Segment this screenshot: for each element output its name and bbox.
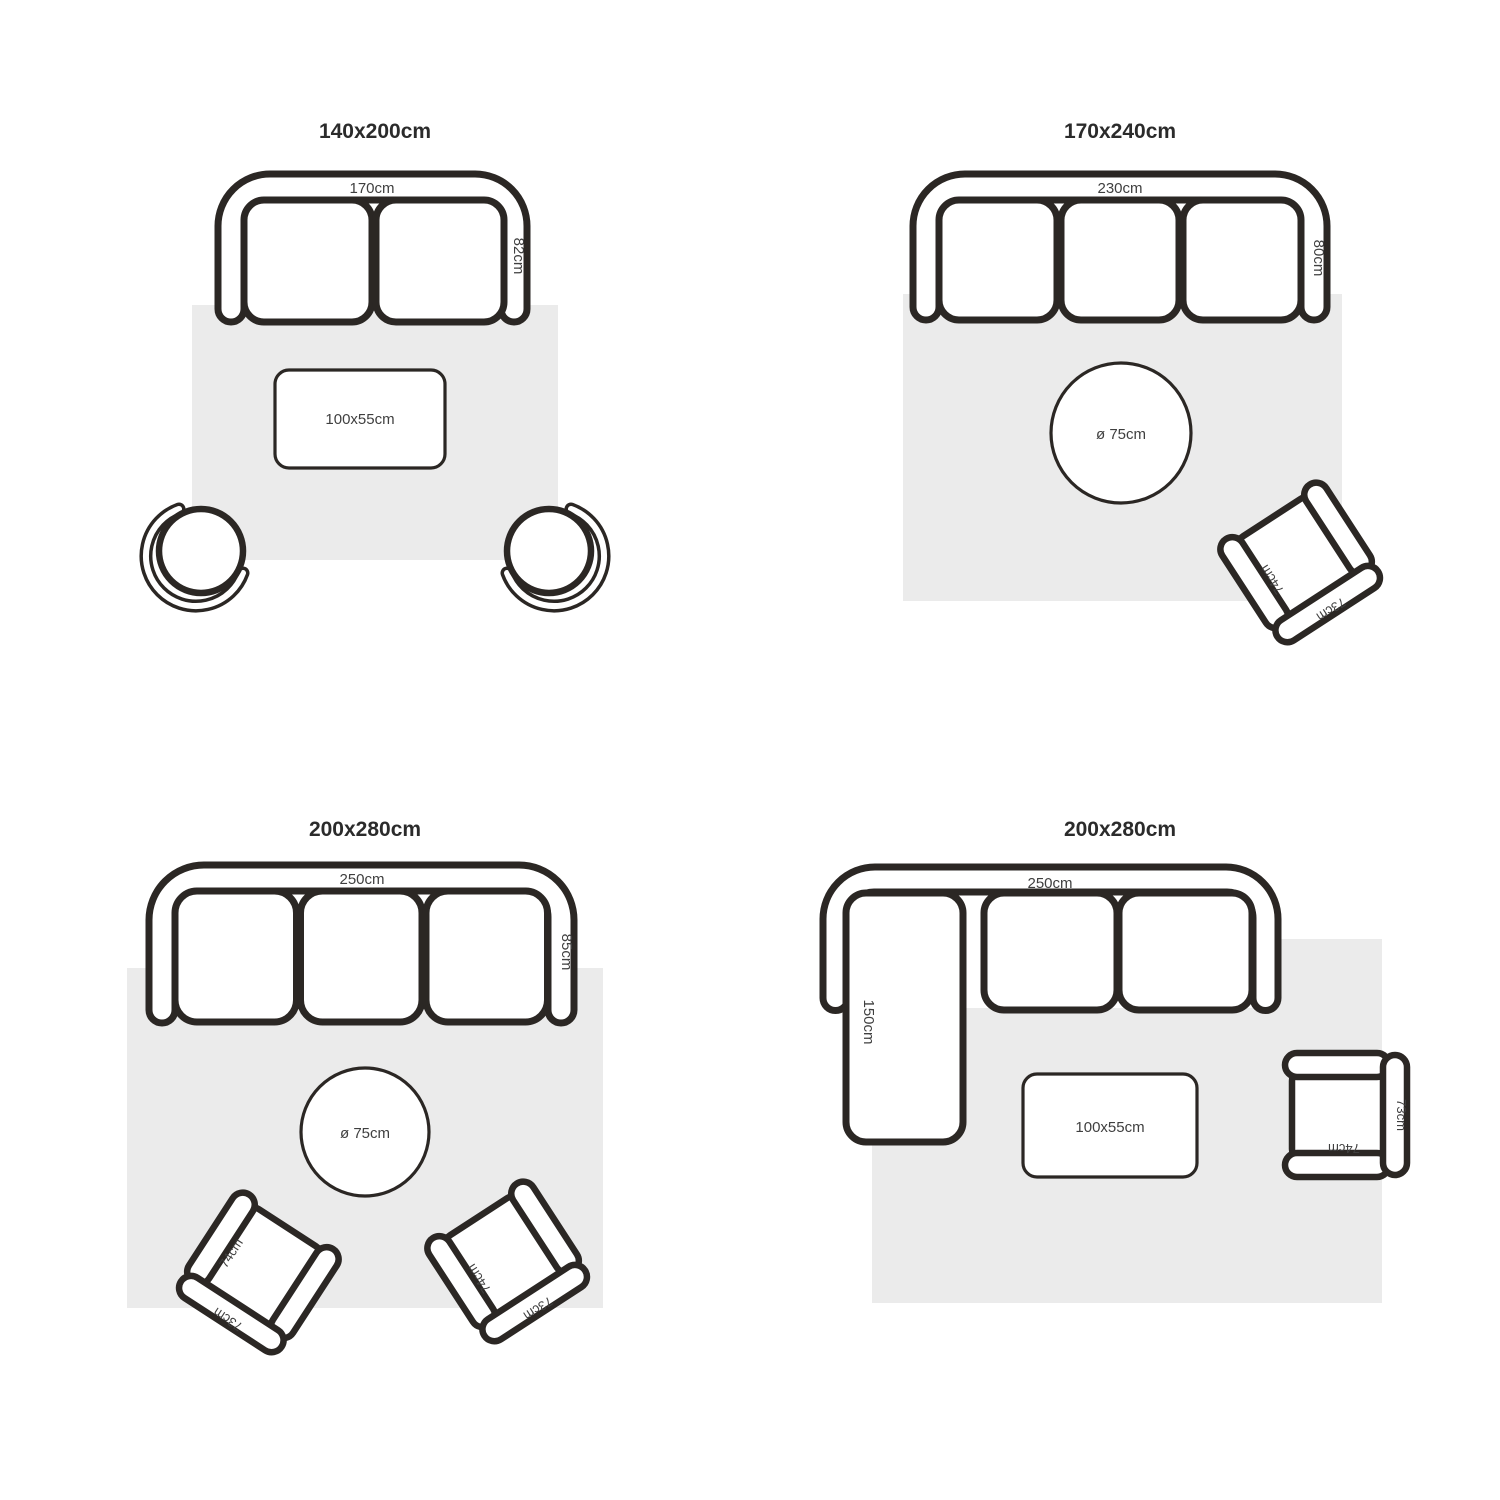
panel-200x280-a: 200x280cm 250cm 85cm ø 75cm: [127, 818, 603, 1360]
panel-140x200: 140x200cm 170cm 82cm 100x55cm: [146, 120, 604, 606]
sofa-depth-label: 80cm: [1310, 240, 1327, 277]
armchair: [1285, 1053, 1409, 1177]
panel-title: 200x280cm: [1064, 818, 1176, 841]
coffee-table: 100x55cm: [275, 370, 445, 468]
stool-left: [146, 509, 243, 606]
sofa-3-seat: 250cm 85cm: [149, 865, 575, 1023]
round-table-label: ø 75cm: [1096, 426, 1146, 443]
round-table: ø 75cm: [1051, 363, 1191, 503]
coffee-table-label: 100x55cm: [1075, 1119, 1144, 1136]
sofa-width-label: 170cm: [349, 180, 394, 197]
round-table-label: ø 75cm: [340, 1125, 390, 1142]
panel-title: 200x280cm: [309, 818, 421, 841]
panel-title: 140x200cm: [319, 120, 431, 143]
coffee-table: 100x55cm: [1023, 1074, 1197, 1177]
panel-title: 170x240cm: [1064, 120, 1176, 143]
sofa-width-label: 250cm: [339, 871, 384, 888]
sofa-width-label: 250cm: [1027, 875, 1072, 892]
rug-size-guide-diagram: 74cm 73cm 140x200cm 170cm 82cm 100x55cm: [0, 0, 1500, 1500]
sofa-3-seat: 230cm 80cm: [913, 174, 1327, 320]
coffee-table-label: 100x55cm: [325, 411, 394, 428]
stool-right: [507, 509, 604, 606]
panel-170x240: 170x240cm 230cm 80cm ø 75cm: [903, 120, 1387, 650]
panel-200x280-b: 200x280cm 250cm 150cm 100x55cm: [823, 818, 1409, 1303]
round-table: ø 75cm: [301, 1068, 429, 1196]
sofa-width-label: 230cm: [1097, 180, 1142, 197]
chaise-length-label: 150cm: [860, 999, 877, 1044]
sofa-2-seat: 170cm 82cm: [218, 174, 527, 322]
sofa-depth-label: 82cm: [510, 238, 527, 275]
sofa-depth-label: 85cm: [558, 934, 575, 971]
